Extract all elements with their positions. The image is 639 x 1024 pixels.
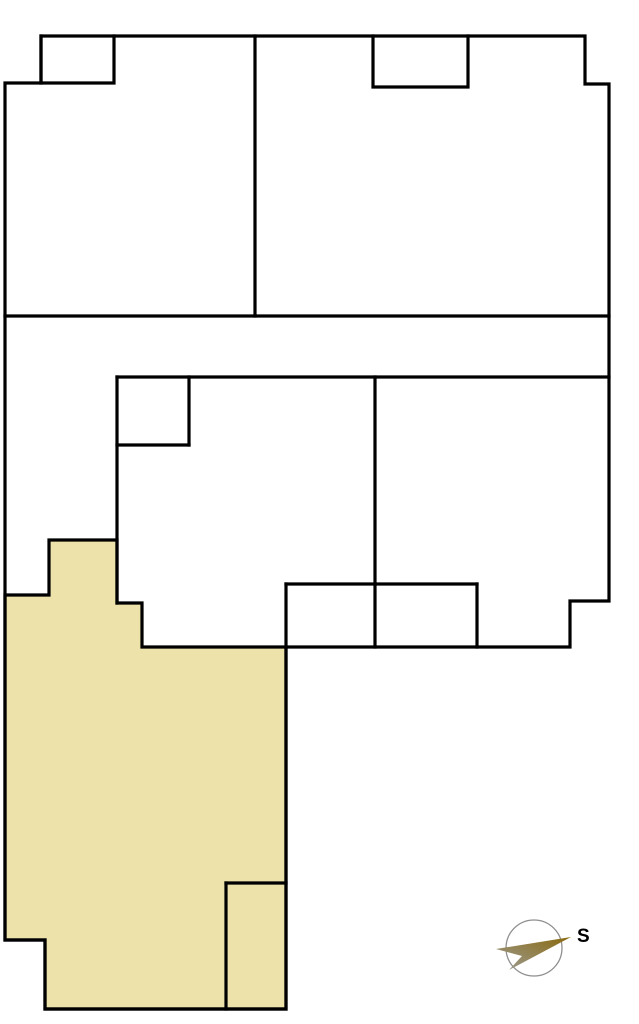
- south-label: S: [577, 926, 590, 947]
- floor-plan: S: [0, 0, 639, 1024]
- floor-plan-canvas: S: [0, 0, 639, 1024]
